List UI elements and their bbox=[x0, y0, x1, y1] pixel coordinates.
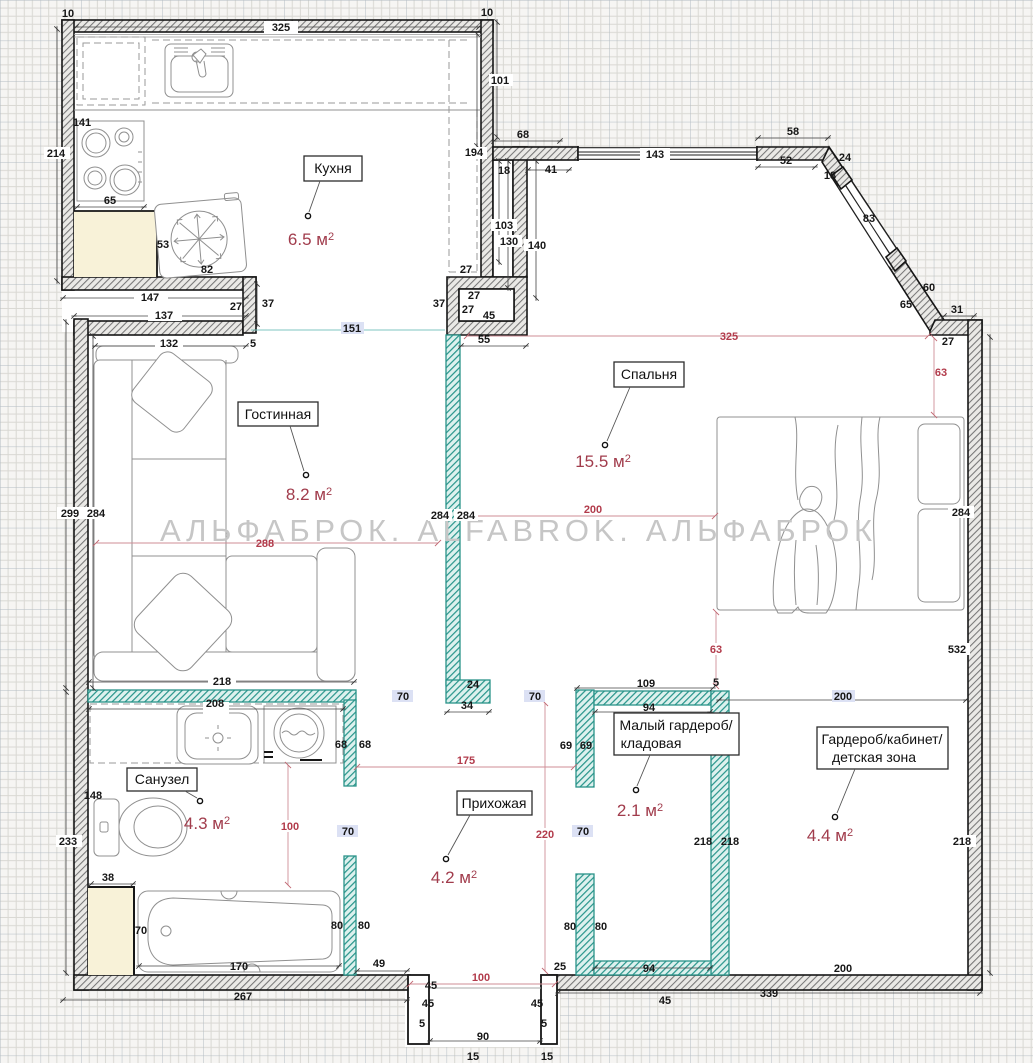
svg-text:130: 130 bbox=[500, 236, 518, 248]
svg-text:Спальня: Спальня bbox=[621, 366, 677, 382]
svg-text:31: 31 bbox=[951, 304, 963, 316]
svg-text:52: 52 bbox=[780, 155, 792, 167]
svg-text:4.4 м2: 4.4 м2 bbox=[807, 826, 853, 845]
svg-text:208: 208 bbox=[206, 698, 224, 710]
svg-text:68: 68 bbox=[359, 739, 371, 751]
svg-text:100: 100 bbox=[281, 821, 299, 833]
svg-text:24: 24 bbox=[467, 679, 480, 691]
svg-text:233: 233 bbox=[59, 836, 77, 848]
svg-text:284: 284 bbox=[87, 508, 106, 520]
svg-text:147: 147 bbox=[141, 292, 159, 304]
svg-text:55: 55 bbox=[478, 334, 490, 346]
svg-text:18: 18 bbox=[498, 165, 510, 177]
svg-text:80: 80 bbox=[595, 921, 607, 933]
svg-text:37: 37 bbox=[262, 298, 274, 310]
svg-text:170: 170 bbox=[230, 961, 248, 973]
svg-text:15: 15 bbox=[541, 1051, 553, 1063]
svg-text:140: 140 bbox=[528, 240, 546, 252]
svg-text:38: 38 bbox=[102, 872, 114, 884]
svg-text:6.5 м2: 6.5 м2 bbox=[288, 230, 334, 249]
svg-text:18: 18 bbox=[824, 170, 836, 182]
svg-text:15.5 м2: 15.5 м2 bbox=[575, 452, 631, 471]
svg-text:2.1 м2: 2.1 м2 bbox=[617, 801, 663, 820]
svg-text:27: 27 bbox=[942, 336, 954, 348]
svg-text:27: 27 bbox=[468, 290, 480, 302]
svg-text:325: 325 bbox=[272, 22, 290, 34]
svg-text:70: 70 bbox=[577, 826, 589, 838]
svg-text:83: 83 bbox=[863, 213, 875, 225]
svg-text:10: 10 bbox=[481, 7, 493, 19]
svg-text:218: 218 bbox=[694, 836, 712, 848]
svg-text:Гардероб/кабинет/: Гардероб/кабинет/ bbox=[822, 731, 943, 747]
svg-text:53: 53 bbox=[157, 239, 169, 251]
svg-text:10: 10 bbox=[62, 8, 74, 20]
svg-text:65: 65 bbox=[104, 195, 116, 207]
svg-text:24: 24 bbox=[839, 152, 852, 164]
svg-text:132: 132 bbox=[160, 338, 178, 350]
svg-text:94: 94 bbox=[643, 963, 656, 975]
svg-text:27: 27 bbox=[230, 301, 242, 313]
svg-text:80: 80 bbox=[564, 921, 576, 933]
svg-text:141: 141 bbox=[73, 117, 91, 129]
svg-text:34: 34 bbox=[461, 700, 474, 712]
svg-text:109: 109 bbox=[637, 678, 655, 690]
svg-text:5: 5 bbox=[419, 1018, 425, 1030]
svg-text:детская зона: детская зона bbox=[832, 749, 916, 765]
svg-text:200: 200 bbox=[834, 963, 852, 975]
svg-text:151: 151 bbox=[343, 323, 361, 335]
svg-text:267: 267 bbox=[234, 991, 252, 1003]
svg-text:65: 65 bbox=[900, 299, 912, 311]
svg-text:Кухня: Кухня bbox=[314, 160, 351, 176]
svg-text:137: 137 bbox=[155, 310, 173, 322]
svg-text:70: 70 bbox=[529, 691, 541, 703]
svg-text:45: 45 bbox=[422, 998, 434, 1010]
svg-text:27: 27 bbox=[462, 304, 474, 316]
svg-text:41: 41 bbox=[545, 164, 557, 176]
svg-text:Санузел: Санузел bbox=[135, 771, 190, 787]
svg-text:90: 90 bbox=[477, 1031, 489, 1043]
svg-text:49: 49 bbox=[373, 958, 385, 970]
svg-text:148: 148 bbox=[84, 790, 102, 802]
svg-text:Малый гардероб/: Малый гардероб/ bbox=[619, 717, 732, 733]
svg-text:4.2 м2: 4.2 м2 bbox=[431, 868, 477, 887]
svg-text:Прихожая: Прихожая bbox=[462, 795, 527, 811]
svg-text:27: 27 bbox=[460, 264, 472, 276]
svg-text:218: 218 bbox=[213, 676, 231, 688]
svg-text:4.3 м2: 4.3 м2 bbox=[184, 814, 230, 833]
svg-text:5: 5 bbox=[250, 338, 256, 350]
svg-text:68: 68 bbox=[517, 129, 529, 141]
svg-text:кладовая: кладовая bbox=[621, 735, 682, 751]
svg-text:175: 175 bbox=[457, 755, 475, 767]
svg-text:69: 69 bbox=[560, 740, 572, 752]
svg-text:214: 214 bbox=[47, 148, 66, 160]
svg-text:200: 200 bbox=[584, 504, 602, 516]
svg-text:218: 218 bbox=[953, 836, 971, 848]
svg-text:58: 58 bbox=[787, 126, 799, 138]
svg-text:339: 339 bbox=[760, 988, 778, 1000]
svg-text:15: 15 bbox=[467, 1051, 479, 1063]
svg-text:284: 284 bbox=[457, 510, 476, 522]
svg-text:299: 299 bbox=[61, 508, 79, 520]
svg-text:143: 143 bbox=[646, 149, 664, 161]
svg-text:80: 80 bbox=[331, 920, 343, 932]
svg-text:8.2 м2: 8.2 м2 bbox=[286, 485, 332, 504]
svg-text:70: 70 bbox=[397, 691, 409, 703]
svg-text:69: 69 bbox=[580, 740, 592, 752]
svg-text:532: 532 bbox=[948, 644, 966, 656]
svg-text:194: 194 bbox=[465, 147, 484, 159]
svg-text:284: 284 bbox=[952, 507, 971, 519]
svg-text:63: 63 bbox=[935, 367, 947, 379]
svg-text:45: 45 bbox=[425, 980, 437, 992]
svg-text:220: 220 bbox=[536, 829, 554, 841]
svg-text:80: 80 bbox=[358, 920, 370, 932]
svg-text:82: 82 bbox=[201, 264, 213, 276]
svg-text:70: 70 bbox=[342, 826, 354, 838]
svg-text:218: 218 bbox=[721, 836, 739, 848]
svg-text:94: 94 bbox=[643, 702, 656, 714]
svg-text:325: 325 bbox=[720, 331, 738, 343]
svg-text:45: 45 bbox=[531, 998, 543, 1010]
svg-text:37: 37 bbox=[433, 298, 445, 310]
svg-text:103: 103 bbox=[495, 220, 513, 232]
svg-text:70: 70 bbox=[135, 925, 147, 937]
svg-text:5: 5 bbox=[541, 1018, 547, 1030]
svg-text:100: 100 bbox=[472, 972, 490, 984]
svg-text:284: 284 bbox=[431, 510, 450, 522]
svg-text:101: 101 bbox=[491, 75, 509, 87]
svg-text:25: 25 bbox=[554, 961, 566, 973]
svg-text:63: 63 bbox=[710, 644, 722, 656]
svg-text:68: 68 bbox=[335, 739, 347, 751]
svg-text:5: 5 bbox=[713, 677, 719, 689]
svg-text:45: 45 bbox=[659, 995, 671, 1007]
svg-text:200: 200 bbox=[834, 691, 852, 703]
svg-text:288: 288 bbox=[256, 538, 274, 550]
svg-text:Гостинная: Гостинная bbox=[245, 406, 312, 422]
svg-text:60: 60 bbox=[923, 282, 935, 294]
svg-text:45: 45 bbox=[483, 310, 495, 322]
